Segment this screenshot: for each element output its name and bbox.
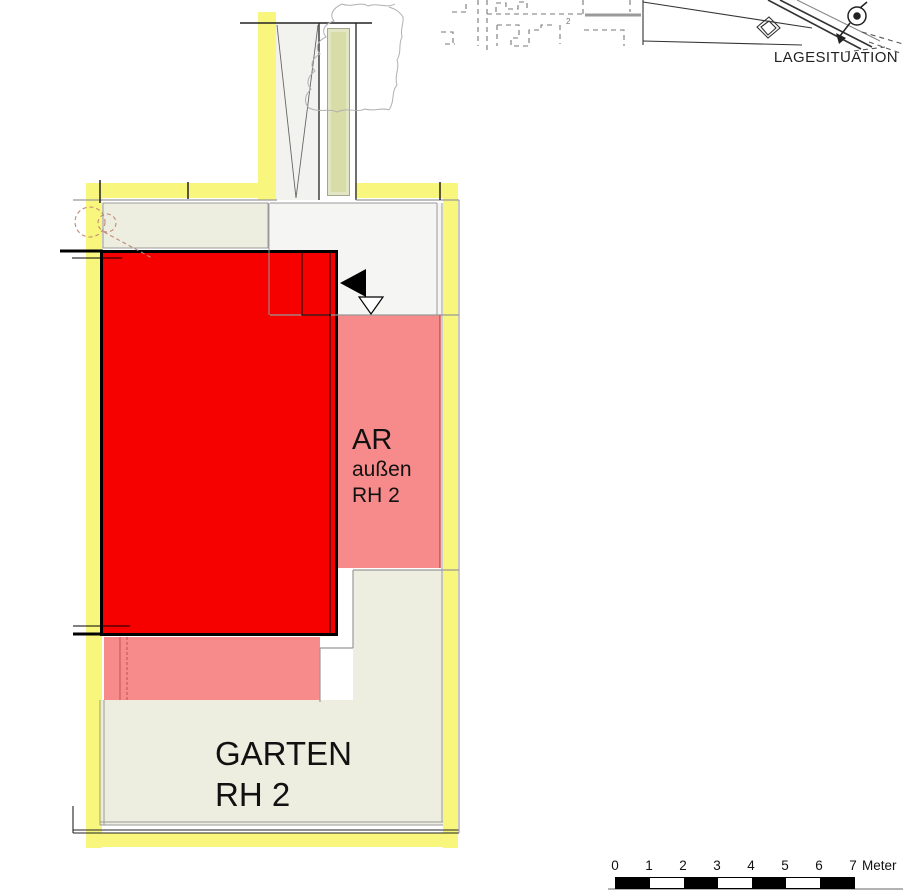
scale-unit-label: Meter bbox=[862, 858, 897, 873]
scale-tick-label: 2 bbox=[672, 858, 694, 873]
garten-label-line1: GARTEN bbox=[215, 733, 352, 774]
site-map-sketch: 2 bbox=[441, 0, 903, 54]
highlight-top-left bbox=[86, 183, 270, 198]
scale-tick-label: 0 bbox=[604, 858, 626, 873]
ar-label-main: AR bbox=[352, 424, 412, 457]
architectural-site-plan: { "site_map": { "title": "LAGESITUATION"… bbox=[0, 0, 903, 892]
ar-lower-area bbox=[104, 637, 320, 700]
scale-tick-label: 5 bbox=[774, 858, 796, 873]
scale-tick-label: 1 bbox=[638, 858, 660, 873]
scale-bar-segment bbox=[820, 878, 854, 888]
highlight-corridor-left bbox=[258, 12, 276, 200]
road-lines bbox=[643, 0, 880, 49]
scale-bar-segment bbox=[684, 878, 718, 888]
building-outlines-dashed bbox=[441, 0, 630, 50]
scale-bar-ticks: 01234567Meter bbox=[608, 858, 903, 874]
building-footprint bbox=[100, 250, 338, 636]
highlight-top-right bbox=[355, 183, 456, 198]
garden-strip-top bbox=[86, 203, 268, 248]
scale-bar-segment bbox=[616, 878, 650, 888]
scale-tick-label: 3 bbox=[706, 858, 728, 873]
scale-bar-segment bbox=[786, 878, 820, 888]
road-building-square bbox=[757, 17, 780, 38]
hedge-core bbox=[331, 32, 346, 192]
garten-label-line2: RH 2 bbox=[215, 774, 352, 815]
ar-label-sub2: RH 2 bbox=[352, 482, 412, 509]
scale-bar-segments bbox=[615, 877, 855, 889]
driveway-area bbox=[276, 24, 319, 200]
north-arrow-icon bbox=[836, 2, 867, 44]
site-map-marker: 2 bbox=[566, 17, 571, 26]
garten-label: GARTEN RH 2 bbox=[215, 733, 352, 815]
scale-bar-segment bbox=[752, 878, 786, 888]
ar-label-sub1: außen bbox=[352, 457, 412, 482]
scale-tick-label: 6 bbox=[808, 858, 830, 873]
bush-outline-squiggles bbox=[305, 4, 403, 112]
highlight-bottom bbox=[86, 833, 450, 847]
highlight-right bbox=[443, 183, 458, 848]
ar-aussen-label: AR außen RH 2 bbox=[352, 424, 412, 509]
scale-tick-label: 4 bbox=[740, 858, 762, 873]
scale-bar-segment bbox=[650, 878, 684, 888]
site-map-title: LAGESITUATION bbox=[752, 49, 898, 66]
scale-bar-segment bbox=[718, 878, 752, 888]
scale-tick-label: 7 bbox=[842, 858, 864, 873]
scale-bar: 01234567Meter bbox=[608, 858, 903, 892]
hedge-strip bbox=[327, 28, 350, 196]
